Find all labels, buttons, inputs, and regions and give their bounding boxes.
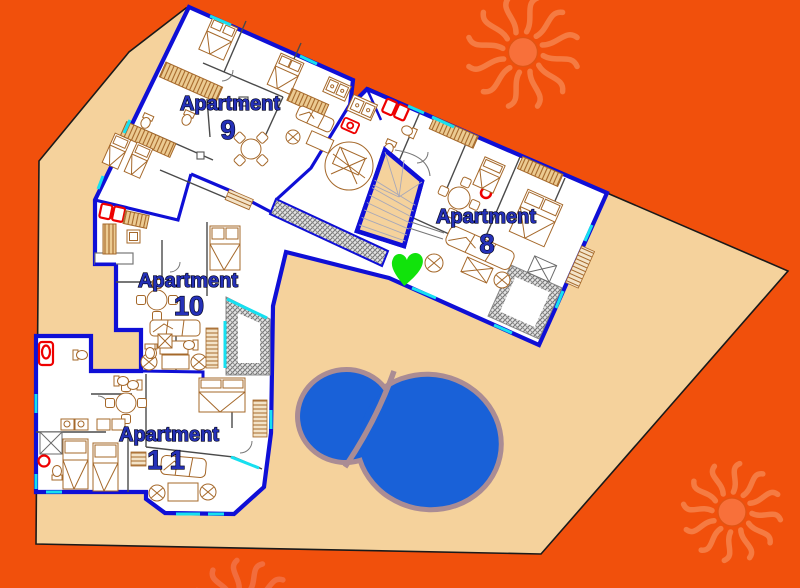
svg-text:Apartment: Apartment (436, 206, 536, 228)
svg-text:9: 9 (220, 115, 235, 145)
svg-text:Apartment: Apartment (138, 270, 238, 292)
svg-text:1 1: 1 1 (147, 445, 185, 475)
svg-text:Apartment: Apartment (180, 93, 280, 115)
svg-text:Apartment: Apartment (119, 424, 219, 446)
svg-text:10: 10 (174, 291, 204, 321)
svg-text:8: 8 (479, 229, 494, 259)
